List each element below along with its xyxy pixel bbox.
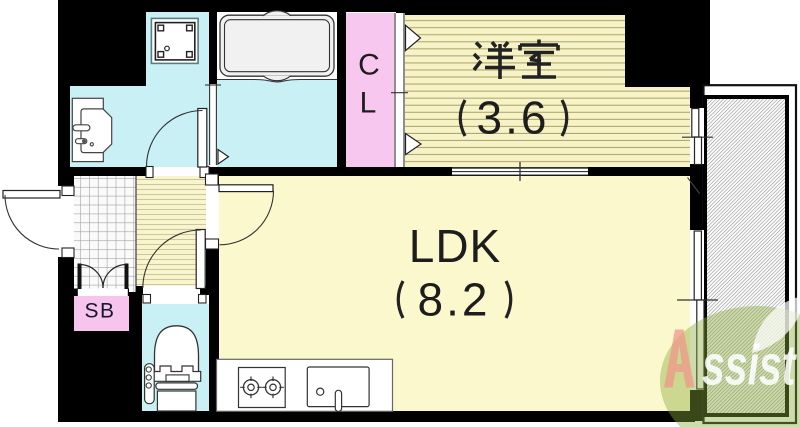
svg-text:3.6: 3.6	[477, 92, 550, 144]
svg-text:ssist: ssist	[702, 333, 798, 397]
svg-text:L: L	[360, 87, 377, 120]
svg-text:LDK: LDK	[409, 220, 501, 272]
svg-text:SB: SB	[84, 300, 115, 323]
svg-text:8.2: 8.2	[418, 274, 491, 326]
svg-text:C: C	[358, 49, 380, 82]
